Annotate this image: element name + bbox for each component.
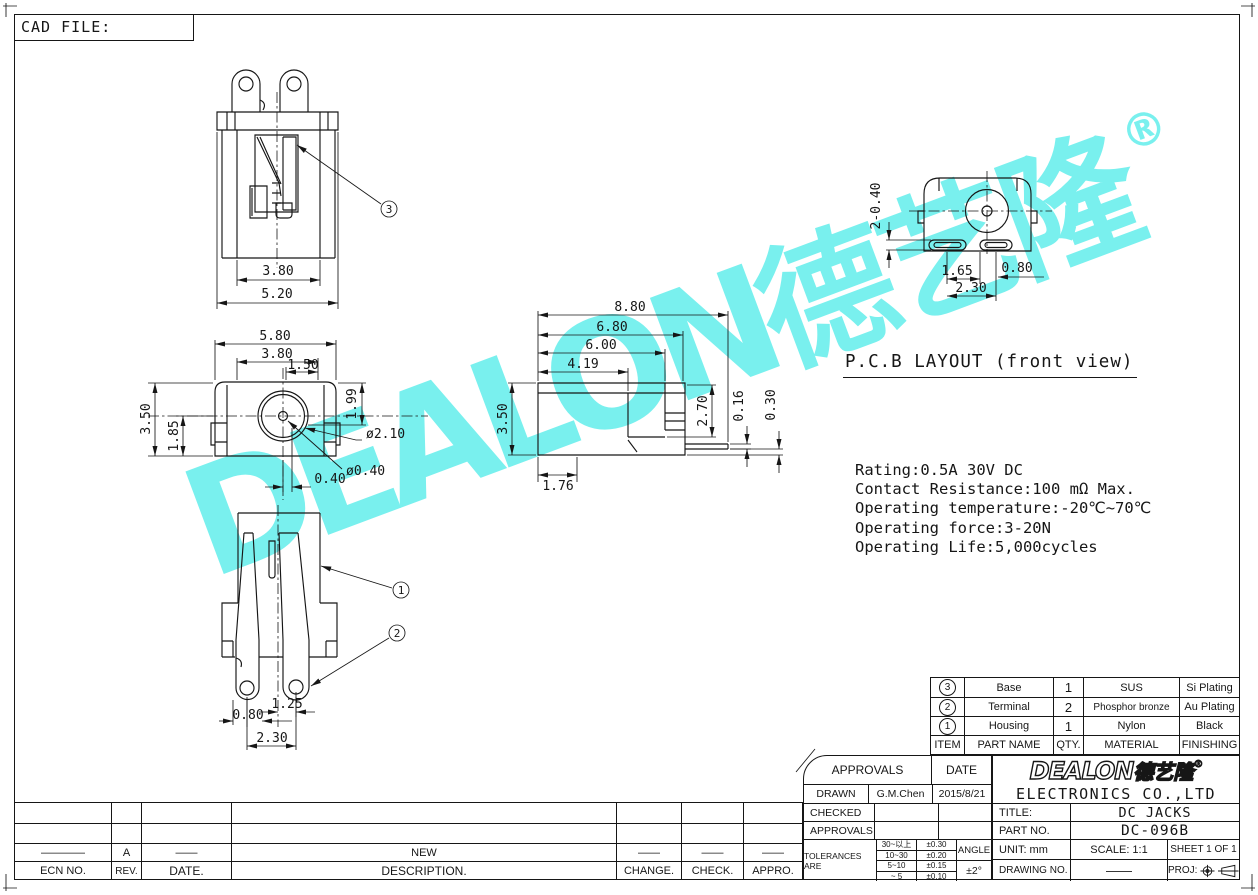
approvals-name: [874, 821, 938, 839]
approvals-row-label: APPROVALS: [804, 821, 874, 839]
rev-header-ecn: ECN NO.: [15, 861, 111, 880]
rev-date-value: ——: [141, 843, 231, 861]
rev-header-change: CHANGE.: [616, 861, 681, 880]
projection-cell: PROJ:: [1167, 859, 1239, 881]
drawn-label: DRAWN: [804, 784, 868, 803]
approvals-date: [938, 821, 991, 839]
rev-header-rev: REV.: [111, 861, 141, 880]
parts-qty-cell: 1: [1053, 716, 1083, 735]
rev-header-check: CHECK.: [681, 861, 743, 880]
parts-header-material: MATERIAL: [1083, 735, 1179, 754]
projection-cone-icon: [1218, 864, 1239, 878]
drawing-sheet: DEALON德艺隆®: [0, 0, 1258, 895]
parts-finishing-cell: Black: [1179, 716, 1239, 735]
company-logo-area: DEALON德艺隆® ELECTRONICS CO.,LTD: [993, 756, 1239, 803]
parts-material-cell: Phosphor bronze: [1083, 697, 1179, 716]
rev-description-value: NEW: [231, 843, 616, 861]
rev-ecn-value: ————: [15, 843, 111, 861]
unit-label: UNIT: mm: [993, 839, 1070, 859]
approvals-block: APPROVALS DATE DRAWN G.M.Chen 2015/8/21 …: [803, 755, 992, 880]
parts-finishing-cell: Au Plating: [1179, 697, 1239, 716]
drawn-name: G.M.Chen: [868, 784, 932, 803]
title-label: TITLE:: [993, 803, 1070, 821]
spec-line-operating-life: Operating Life:5,000cycles: [855, 538, 1151, 557]
spec-line-contact-resistance: Contact Resistance:100 mΩ Max.: [855, 480, 1151, 499]
part-no-label: PART NO.: [993, 821, 1070, 839]
rev-header-date: DATE.: [141, 861, 231, 880]
pcb-layout-title: P.C.B LAYOUT (front view): [843, 352, 1137, 378]
rev-header-appro: APPRO.: [743, 861, 802, 880]
checked-name: [874, 803, 938, 821]
parts-qty-cell: 2: [1053, 697, 1083, 716]
revision-table: ———— A —— NEW —— —— —— ECN NO. REV. DATE…: [14, 802, 803, 880]
spec-line-operating-temperature: Operating temperature:-20℃~70℃: [855, 499, 1151, 518]
rev-letter: A: [111, 843, 141, 861]
rev-check-value: ——: [681, 843, 743, 861]
angle-label: ANGLE: [956, 839, 991, 860]
company-logo: DEALON德艺隆®: [1030, 756, 1203, 785]
rev-header-description: DESCRIPTION.: [231, 861, 616, 880]
title-block: DEALON德艺隆® ELECTRONICS CO.,LTD TITLE: DC…: [992, 755, 1240, 880]
spec-line-operating-force: Operating force:3-20N: [855, 519, 1151, 538]
drawing-no-label: DRAWING NO.: [993, 859, 1070, 881]
cad-file-label: CAD FILE:: [21, 18, 111, 36]
rev-change-value: ——: [616, 843, 681, 861]
parts-table: 3 Base 1 SUS Si Plating 2 Terminal 2 Pho…: [930, 677, 1240, 755]
parts-finishing-cell: Si Plating: [1179, 678, 1239, 697]
parts-header-item: ITEM: [931, 735, 964, 754]
spec-line-rating: Rating:0.5A 30V DC: [855, 461, 1151, 480]
date-header: DATE: [931, 756, 991, 784]
projection-target-icon: [1200, 864, 1215, 878]
angle-tolerance: ANGLE ±2°: [956, 839, 991, 881]
parts-name-cell: Base: [964, 678, 1053, 697]
angle-value: ±2°: [956, 860, 991, 881]
scale-label: SCALE: 1:1: [1070, 839, 1167, 859]
parts-material-cell: SUS: [1083, 678, 1179, 697]
parts-name-cell: Housing: [964, 716, 1053, 735]
spec-notes: Rating:0.5A 30V DC Contact Resistance:10…: [855, 461, 1151, 557]
tolerances-label: TOLERANCES ARE: [804, 839, 876, 881]
parts-header-finishing: FINISHING: [1179, 735, 1239, 754]
parts-item-cell: 2: [931, 697, 964, 716]
parts-item-cell: 1: [931, 716, 964, 735]
parts-header-qty: QTY.: [1053, 735, 1083, 754]
title-value: DC JACKS: [1070, 803, 1239, 821]
checked-label: CHECKED: [804, 803, 874, 821]
parts-item-cell: 3: [931, 678, 964, 697]
part-no-value: DC-096B: [1070, 821, 1239, 839]
drawn-date: 2015/8/21: [932, 784, 991, 803]
company-name: ELECTRONICS CO.,LTD: [1016, 785, 1216, 803]
sheet-label: SHEET 1 OF 1: [1167, 839, 1239, 859]
parts-material-cell: Nylon: [1083, 716, 1179, 735]
parts-name-cell: Terminal: [964, 697, 1053, 716]
approvals-header: APPROVALS: [804, 756, 931, 784]
drawing-no-value: ——: [1070, 859, 1167, 881]
parts-header-name: PART NAME: [964, 735, 1053, 754]
cad-file-box: CAD FILE:: [14, 14, 194, 41]
checked-date: [938, 803, 991, 821]
registered-trademark-icon: ®: [1193, 759, 1202, 770]
parts-qty-cell: 1: [1053, 678, 1083, 697]
rev-appro-value: ——: [743, 843, 802, 861]
tolerance-subtable: 30~以上 ±0.30 10~30 ±0.20 5~10 ±0.15 ~ 5 ±…: [876, 839, 956, 881]
proj-label: PROJ:: [1168, 865, 1197, 876]
